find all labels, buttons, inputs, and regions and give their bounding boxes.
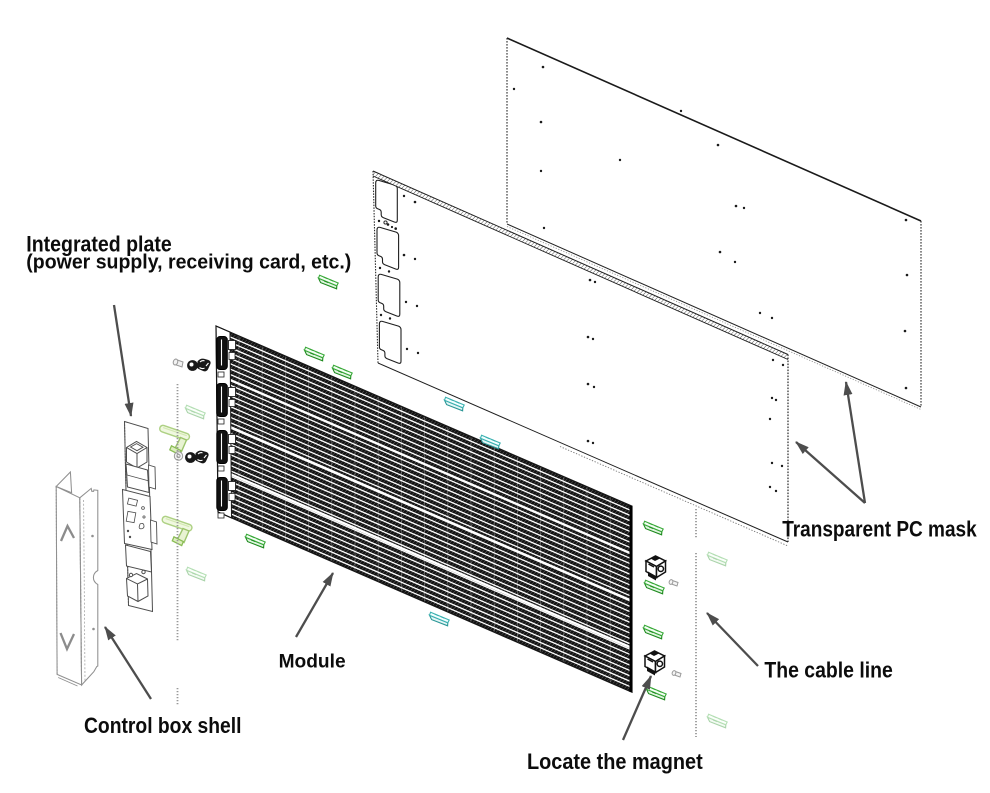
svg-text:(power supply, receiving card,: (power supply, receiving card, etc.) (26, 252, 351, 274)
svg-text:Transparent PC mask: Transparent PC mask (782, 517, 977, 542)
svg-text:Locate the magnet: Locate the magnet (527, 749, 703, 774)
svg-text:The cable line: The cable line (764, 657, 892, 682)
svg-text:Control box shell: Control box shell (84, 713, 242, 738)
svg-text:Module: Module (279, 651, 346, 673)
